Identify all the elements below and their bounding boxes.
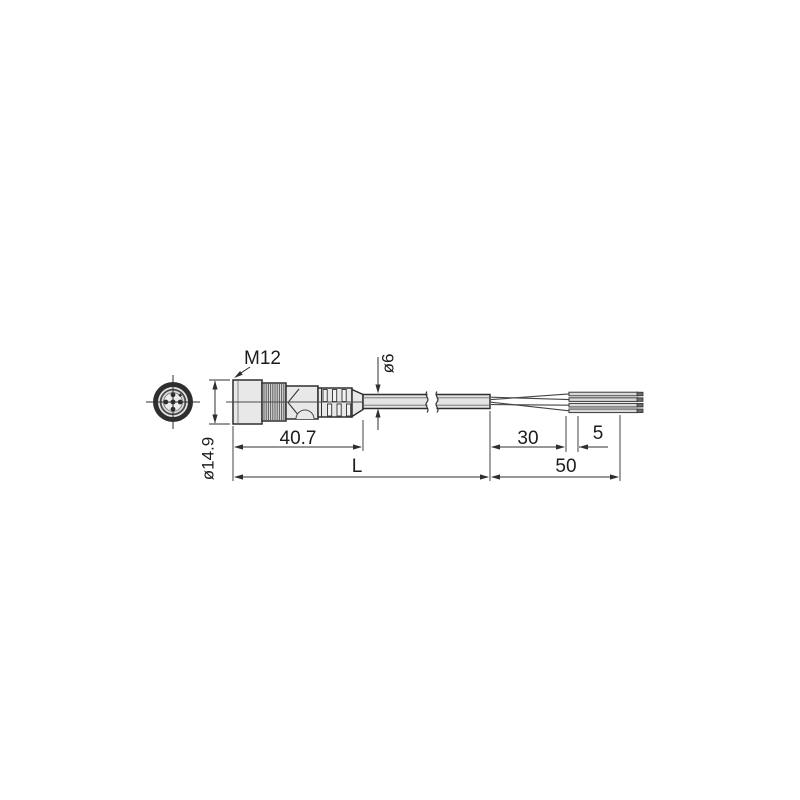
label-connector-length: 40.7 (268, 429, 328, 448)
wire-tips (637, 392, 643, 412)
strain-relief-body (286, 386, 318, 419)
label-fanout-length: 30 (508, 429, 548, 448)
label-stripped-length: 50 (546, 457, 586, 476)
boot-taper (352, 390, 363, 417)
label-thread-size: M12 (244, 349, 281, 368)
cable-break (426, 391, 438, 413)
label-cable-diameter: ø6 (380, 349, 397, 379)
wire-fanout (491, 394, 569, 411)
wires (491, 392, 643, 412)
ribbed-boot (318, 388, 363, 417)
drawing-canvas: M12 ø6 ø14.9 40.7 L 30 5 50 (0, 0, 800, 800)
cable-assembly-drawing (0, 0, 800, 800)
label-connector-diameter: ø14.9 (200, 431, 217, 487)
wire-leads (569, 392, 638, 412)
side-view (226, 380, 371, 424)
label-cable-length: L (345, 457, 369, 476)
label-tip-length: 5 (588, 424, 608, 443)
front-view (146, 375, 200, 429)
cable (363, 391, 490, 413)
